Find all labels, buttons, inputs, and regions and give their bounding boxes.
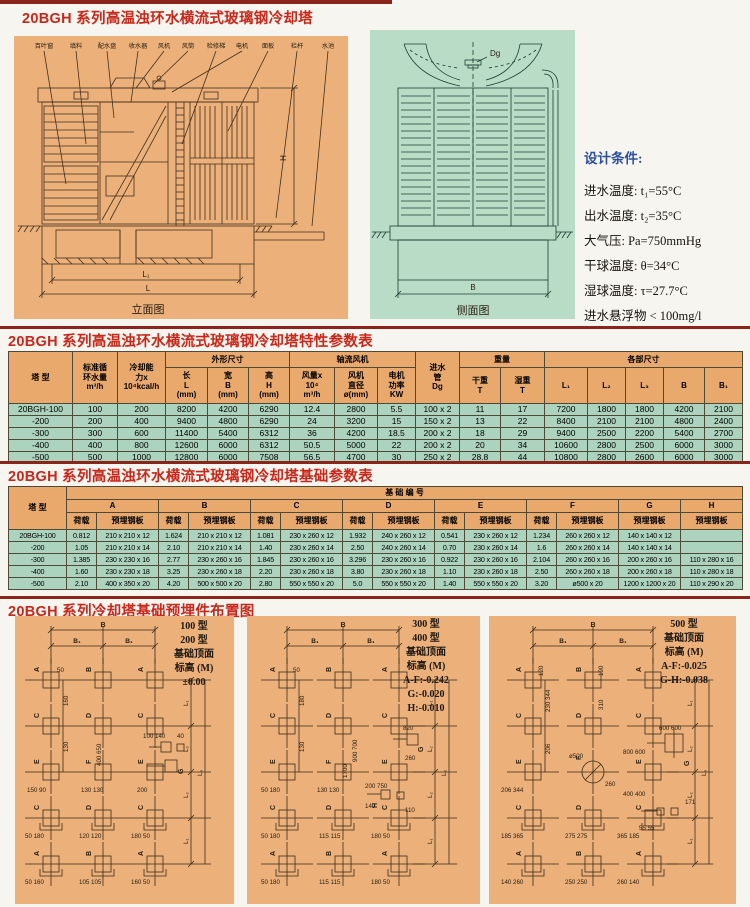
data-cell: 1.624: [159, 530, 189, 542]
condition-line: 进水温度: t₁=55°C: [584, 179, 748, 204]
col-f: F: [527, 500, 619, 513]
col-load: 荷载: [435, 513, 465, 530]
design-conditions: 设计条件: 进水温度: t₁=55°C 出水温度: t₂=35°C 大气压: P…: [584, 146, 748, 329]
data-cell: 1.234: [527, 530, 557, 542]
dim-right: L₂: [183, 792, 190, 798]
anchor-letter: B: [86, 667, 93, 672]
col-tower: 塔 型: [9, 352, 73, 404]
side-label-line: 300 型: [374, 618, 478, 632]
data-cell: 110 x 280 x 16: [681, 554, 743, 566]
table-row: 20BGH-1000.812210 x 210 x 121.624210 x 2…: [9, 530, 743, 542]
section-rule: [0, 596, 750, 599]
dim-num: 171: [685, 799, 696, 806]
dim-num: 160 50: [131, 879, 150, 886]
data-cell: 1.932: [343, 530, 373, 542]
side-view-panel: Dg B 侧面图: [370, 30, 575, 319]
data-cell: 230 x 260 x 14: [465, 542, 527, 554]
diagram-panel-500: B B₁ B₁ A B A C D C E F E C D C A B A G …: [489, 616, 736, 904]
data-cell: 1.05: [67, 542, 97, 554]
anchor-letter: A: [516, 667, 523, 672]
dim-num: 230 344: [545, 689, 552, 712]
data-cell: 12.4: [290, 404, 335, 416]
col-l3: L₃: [626, 368, 664, 404]
dim-num: 40: [177, 733, 184, 740]
table-row: -2001.05210 x 210 x 142.10210 x 210 x 14…: [9, 542, 743, 554]
data-cell: 1800: [588, 404, 626, 416]
data-cell: 6000: [664, 440, 705, 452]
dim-b1: B₁: [125, 638, 133, 645]
anchor-letter: A: [138, 851, 145, 856]
dim-num: 50: [293, 667, 300, 674]
data-cell: 230 x 260 x 18: [373, 566, 435, 578]
anchor-letter: E: [270, 759, 277, 764]
diagram-side-label: 100 型 200 型 基础顶面 标高 (M) ±0.00: [158, 620, 230, 690]
data-cell: 210 x 210 x 14: [189, 542, 251, 554]
col-b1: B₁: [705, 368, 743, 404]
dim-b1: B₁: [311, 638, 319, 645]
data-cell: 1.385: [67, 554, 97, 566]
col-a: A: [67, 500, 159, 513]
col-load: 荷载: [527, 513, 557, 530]
col-motor: 电机 功率 KW: [378, 368, 416, 404]
col-plate: 预埋钢板: [189, 513, 251, 530]
dim-num: 130 130: [317, 787, 340, 794]
data-cell: 3.20: [527, 578, 557, 590]
elevation-drawing: 百叶窗 填料 配水盘 收水器 风机 风筒 检修梯 电机 面板 栏杆 水池 H L…: [14, 36, 348, 319]
dim-l: L: [146, 284, 151, 293]
data-cell: 2400: [705, 416, 743, 428]
col-inlet: 进水 管 Dg: [416, 352, 460, 404]
data-cell: 29: [501, 428, 545, 440]
anchor-letter: B: [326, 851, 333, 856]
col-b: B: [664, 368, 705, 404]
data-cell: 13: [460, 416, 501, 428]
dim-num: 140 260: [501, 879, 524, 886]
data-cell: 5.0: [343, 578, 373, 590]
anchor-letter: D: [576, 713, 583, 718]
data-cell: 230 x 260 x 16: [189, 554, 251, 566]
data-cell: 2800: [335, 404, 378, 416]
data-cell: 1.40: [251, 542, 281, 554]
data-cell: 0.922: [435, 554, 465, 566]
side-label-line: ±0.00: [158, 676, 230, 690]
data-cell: 20: [460, 440, 501, 452]
data-cell: 230 x 260 x 18: [465, 566, 527, 578]
row-header-cell: 20BGH-100: [9, 530, 67, 542]
data-cell: 230 x 260 x 14: [281, 542, 343, 554]
data-cell: 10600: [545, 440, 588, 452]
dim-num: 820: [403, 725, 414, 732]
data-cell: 2.10: [159, 542, 189, 554]
data-cell: 0.70: [435, 542, 465, 554]
data-cell: 9400: [545, 428, 588, 440]
elevation-panel: 百叶窗 填料 配水盘 收水器 风机 风筒 检修梯 电机 面板 栏杆 水池 H L…: [14, 36, 348, 319]
side-view-lines: [372, 42, 573, 298]
data-cell: 11400: [166, 428, 208, 440]
anchor-letter: C: [516, 805, 523, 810]
dim-right: L₂: [427, 792, 434, 798]
dim-l1: L₁: [142, 270, 149, 279]
dim-num: 1700: [342, 764, 349, 778]
table1-body: 20BGH-10010020082004200629012.428005.510…: [9, 404, 743, 464]
data-cell: 8200: [166, 404, 208, 416]
col-plate: 预埋钢板: [619, 513, 681, 530]
anchor-letter: A: [636, 851, 643, 856]
col-e: E: [435, 500, 527, 513]
data-cell: 17: [501, 404, 545, 416]
row-header-cell: -200: [9, 542, 67, 554]
data-cell: 2800: [588, 440, 626, 452]
dim-num: 150 90: [27, 787, 46, 794]
col-group-foundation: 基 础 编 号: [67, 487, 743, 500]
row-header-cell: -400: [9, 566, 67, 578]
data-cell: ø500 x 20: [557, 578, 619, 590]
dim-num: 110: [405, 807, 415, 814]
dim-right: L₁: [687, 700, 694, 706]
dim-num: 200 750: [365, 783, 388, 790]
table-row: -400400800126006000631250.5500022200 x 2…: [9, 440, 743, 452]
col-fan-dia: 风机 直径 ø(mm): [335, 368, 378, 404]
data-cell: 24: [290, 416, 335, 428]
dim-num: 260: [405, 755, 416, 762]
dim-right: L₂: [687, 746, 694, 752]
data-cell: 3200: [335, 416, 378, 428]
anchor-letter: C: [636, 805, 643, 810]
data-cell: 3.296: [343, 554, 373, 566]
table-row: -3001.385230 x 230 x 162.77230 x 260 x 1…: [9, 554, 743, 566]
table-row: -5002.10400 x 350 x 204.20500 x 500 x 20…: [9, 578, 743, 590]
anchor-letter: C: [270, 805, 277, 810]
data-cell: 200 x 260 x 18: [619, 566, 681, 578]
data-cell: 200: [73, 416, 118, 428]
dim-num: 130 130: [81, 787, 104, 794]
dim-num: 180: [299, 695, 306, 706]
dim-num: 180 50: [131, 833, 150, 840]
anchor-letter: A: [138, 667, 145, 672]
col-group-weight: 重量: [460, 352, 545, 368]
data-cell: 100 x 2: [416, 404, 460, 416]
dim-num: 130: [299, 741, 306, 752]
col-load: 荷载: [67, 513, 97, 530]
dim-num: 55 55: [639, 825, 655, 832]
data-cell: 50.5: [290, 440, 335, 452]
side-label-line: 基础顶面: [634, 632, 734, 646]
anchor-letter: C: [34, 713, 41, 718]
row-header-cell: -300: [9, 554, 67, 566]
condition-line: 大气压: Pa=750mmHg: [584, 229, 748, 254]
data-cell: 18: [460, 428, 501, 440]
dim-num: 310: [598, 699, 605, 710]
anchor-letter: E: [636, 759, 643, 764]
dim-dg: Dg: [490, 49, 500, 58]
dim-b1: B₁: [559, 638, 567, 645]
data-cell: 5400: [208, 428, 249, 440]
data-cell: 140 x 140 x 12: [619, 530, 681, 542]
data-cell: 600: [118, 428, 166, 440]
dim-num: 115 115: [319, 833, 341, 840]
data-cell: 260 x 260 x 18: [557, 566, 619, 578]
data-cell: 140 x 140 x 14: [619, 542, 681, 554]
data-cell: 230 x 260 x 12: [465, 530, 527, 542]
col-flow: 标准循 环水量 m³/h: [73, 352, 118, 404]
condition-line: 湿球温度: τ=27.7°C: [584, 279, 748, 304]
data-cell: 1800: [626, 404, 664, 416]
data-cell: 2100: [588, 416, 626, 428]
dim-num: ø500: [569, 753, 584, 760]
data-cell: 230 x 260 x 12: [281, 530, 343, 542]
data-cell: 210 x 210 x 14: [97, 542, 159, 554]
dim-num: 185 365: [501, 833, 524, 840]
side-view-drawing: Dg B 侧面图: [370, 30, 575, 319]
col-tower: 塔 型: [9, 487, 67, 530]
data-cell: 210 x 210 x 12: [97, 530, 159, 542]
side-label-line: 标高 (M): [374, 660, 478, 674]
col-length: 长 L (mm): [166, 368, 208, 404]
data-cell: 6290: [249, 416, 290, 428]
dim-num: 120 120: [79, 833, 102, 840]
data-cell: 260 x 260 x 14: [557, 542, 619, 554]
anchor-letter: D: [326, 713, 333, 718]
anchor-letter: A: [270, 851, 277, 856]
col-group-fan: 轴流风机: [290, 352, 416, 368]
col-d: D: [343, 500, 435, 513]
data-cell: 4200: [664, 404, 705, 416]
table-row: 20BGH-10010020082004200629012.428005.510…: [9, 404, 743, 416]
data-cell: 200 x 2: [416, 440, 460, 452]
dim-num: 200: [137, 787, 148, 794]
diagram-panel-100-200: B B₁ B₁ A B A C D C E F E C D C A B A G …: [15, 616, 234, 904]
data-cell: 200 x 2: [416, 428, 460, 440]
side-label-line: 500 型: [634, 618, 734, 632]
data-cell: [681, 542, 743, 554]
data-cell: 110 x 280 x 18: [681, 566, 743, 578]
dim-num: 206: [545, 743, 552, 754]
dim-b: B: [590, 622, 595, 629]
col-load: 荷载: [251, 513, 281, 530]
data-cell: 1.40: [435, 578, 465, 590]
dim-num: 260 140: [617, 879, 640, 886]
data-cell: 800: [118, 440, 166, 452]
anchor-letter: C: [138, 805, 145, 810]
data-cell: 36: [290, 428, 335, 440]
side-label-line: 100 型: [158, 620, 230, 634]
data-cell: 4200: [208, 404, 249, 416]
data-cell: 8400: [545, 416, 588, 428]
data-cell: 1.081: [251, 530, 281, 542]
col-width: 宽 B (mm): [208, 368, 249, 404]
part-label: 栏杆: [291, 42, 303, 50]
part-label: 收水器: [129, 42, 148, 50]
data-cell: [681, 530, 743, 542]
data-cell: 200: [118, 404, 166, 416]
anchor-letter: G: [684, 760, 691, 766]
col-plate: 预埋钢板: [373, 513, 435, 530]
dim-right: L₁: [183, 700, 190, 706]
anchor-letter: E: [382, 759, 389, 764]
anchor-letter: C: [270, 713, 277, 718]
data-cell: 4200: [335, 428, 378, 440]
dim-num: 206 344: [501, 787, 524, 794]
data-cell: 230 x 260 x 16: [281, 554, 343, 566]
diagram-side-label: 500 型 基础顶面 标高 (M) A-F:-0.025 G-H:-0.038: [634, 618, 734, 688]
dim-num: 180 50: [371, 879, 390, 886]
anchor-letter: B: [576, 667, 583, 672]
col-c: C: [251, 500, 343, 513]
data-cell: 6000: [208, 440, 249, 452]
anchor-letter: A: [270, 667, 277, 672]
anchor-letter: G: [418, 746, 425, 752]
col-group-parts: 各部尺寸: [545, 352, 743, 368]
data-cell: 3.80: [343, 566, 373, 578]
col-airflow: 风量x 10⁴ m³/h: [290, 368, 335, 404]
row-header-cell: 20BGH-100: [9, 404, 73, 416]
data-cell: 15: [378, 416, 416, 428]
dim-num: 50 160: [25, 879, 44, 886]
condition-line: 出水温度: t₂=35°C: [584, 204, 748, 229]
part-label: 百叶窗: [35, 42, 54, 50]
dim-b1: B₁: [619, 638, 627, 645]
dim-num: 180 50: [371, 833, 390, 840]
dim-right: L₁: [687, 838, 694, 844]
dim-b: B: [100, 622, 105, 629]
dim-right: L₃: [441, 770, 448, 776]
data-cell: 6290: [249, 404, 290, 416]
dim-right: L₃: [701, 770, 708, 776]
dim-num: 120: [538, 665, 545, 676]
dim-right: L₁: [427, 838, 434, 844]
data-cell: 3.25: [159, 566, 189, 578]
data-cell: 230 x 260 x 18: [189, 566, 251, 578]
side-label-line: 标高 (M): [634, 646, 734, 660]
side-label-line: 基础顶面: [158, 648, 230, 662]
dim-num: 115 115: [319, 879, 341, 886]
dim-num: 275 275: [565, 833, 588, 840]
anchor-letter: C: [138, 713, 145, 718]
anchor-letter: D: [576, 805, 583, 810]
data-cell: 1.10: [435, 566, 465, 578]
dim-right: L₃: [197, 770, 204, 776]
col-wet: 湿重 T: [501, 368, 545, 404]
diagram-panel-300-400: B B₁ B₁ A B A C D C E F E C D C A B A G …: [247, 616, 480, 904]
data-cell: 300: [73, 428, 118, 440]
row-header-cell: -500: [9, 578, 67, 590]
data-cell: 150 x 2: [416, 416, 460, 428]
dim-h: H: [279, 155, 288, 161]
anchor-letter: E: [138, 759, 145, 764]
data-cell: 1.6: [527, 542, 557, 554]
page-title: 20BGH 系列高温浊环水横流式玻璃钢冷却塔: [22, 7, 313, 28]
anchor-letter: D: [326, 805, 333, 810]
dim-num: 400 650: [96, 743, 103, 766]
data-cell: 4800: [208, 416, 249, 428]
side-label-line: G-H:-0.038: [634, 674, 734, 688]
anchor-letter: B: [326, 667, 333, 672]
data-cell: 400: [73, 440, 118, 452]
dim-num: 50: [57, 667, 64, 674]
data-cell: 6312: [249, 440, 290, 452]
side-label-line: G:-0.020: [374, 688, 478, 702]
data-cell: 230 x 260 x 16: [373, 554, 435, 566]
side-label-line: 基础顶面: [374, 646, 478, 660]
data-cell: 2100: [626, 416, 664, 428]
data-cell: 230 x 230 x 16: [97, 554, 159, 566]
data-cell: 6312: [249, 428, 290, 440]
anchor-letter: A: [516, 851, 523, 856]
dim-num: 400 400: [623, 791, 646, 798]
dim-num: 140: [365, 803, 376, 810]
data-cell: 2.80: [251, 578, 281, 590]
col-plate: 预埋钢板: [281, 513, 343, 530]
data-cell: 18.5: [378, 428, 416, 440]
condition-line: 干球温度: θ=34°C: [584, 254, 748, 279]
part-label: 水池: [322, 42, 334, 50]
anchor-letter: A: [382, 851, 389, 856]
table-row: -4001.60230 x 230 x 183.25230 x 260 x 18…: [9, 566, 743, 578]
side-label-line: H:-0.010: [374, 702, 478, 716]
data-cell: 200 x 260 x 16: [619, 554, 681, 566]
part-label: 电机: [236, 42, 249, 50]
part-label: 配水盘: [98, 42, 117, 50]
data-cell: 400 x 350 x 20: [97, 578, 159, 590]
section-rule: [0, 461, 750, 464]
table2-header: 塔 型 基 础 编 号 A B C D E F G H 荷载 预埋钢板 荷载 预…: [9, 487, 743, 530]
data-cell: 0.541: [435, 530, 465, 542]
anchor-letter: E: [34, 759, 41, 764]
diagram-side-label: 300 型 400 型 基础顶面 标高 (M) A-F:-0.242 G:-0.…: [374, 618, 478, 716]
anchor-letter: B: [86, 851, 93, 856]
dim-num: 800 600: [623, 749, 646, 756]
data-cell: 400: [118, 416, 166, 428]
data-cell: 100: [73, 404, 118, 416]
dim-right: L₂: [687, 792, 694, 798]
side-label-line: 400 型: [374, 632, 478, 646]
col-cooling: 冷却能 力x 10⁴kcal/h: [118, 352, 166, 404]
data-cell: 2700: [705, 428, 743, 440]
anchor-letter: D: [86, 805, 93, 810]
anchor-letter: C: [636, 713, 643, 718]
dim-num: 190: [598, 665, 605, 676]
anchor-letter: C: [34, 805, 41, 810]
dim-num: 105 105: [79, 879, 102, 886]
side-label-line: A-F:-0.242: [374, 674, 478, 688]
dim-right: L₂: [427, 746, 434, 752]
part-label: 检修梯: [207, 42, 226, 50]
data-cell: 2.104: [527, 554, 557, 566]
data-cell: 550 x 550 x 20: [465, 578, 527, 590]
data-cell: 230 x 260 x 18: [281, 566, 343, 578]
data-cell: 240 x 260 x 14: [373, 542, 435, 554]
data-cell: 0.812: [67, 530, 97, 542]
table2-title: 20BGH 系列高温浊环水横流式玻璃钢冷却塔基础参数表: [8, 465, 373, 486]
dim-num: 600 600: [659, 725, 682, 732]
top-rule: [0, 0, 392, 4]
side-label-line: 200 型: [158, 634, 230, 648]
data-cell: 230 x 260 x 16: [465, 554, 527, 566]
part-label: 填料: [70, 42, 82, 50]
data-cell: 260 x 260 x 12: [557, 530, 619, 542]
anchor-letter: F: [86, 759, 93, 764]
anchor-letter: C: [516, 713, 523, 718]
part-label: 风机: [158, 42, 171, 50]
data-cell: 1.60: [67, 566, 97, 578]
col-height: 高 H (mm): [249, 368, 290, 404]
col-plate: 预埋钢板: [465, 513, 527, 530]
anchor-letter: A: [34, 667, 41, 672]
data-cell: 2.50: [527, 566, 557, 578]
data-cell: 2.10: [67, 578, 97, 590]
anchor-letter: F: [326, 759, 333, 764]
data-cell: 3000: [705, 440, 743, 452]
